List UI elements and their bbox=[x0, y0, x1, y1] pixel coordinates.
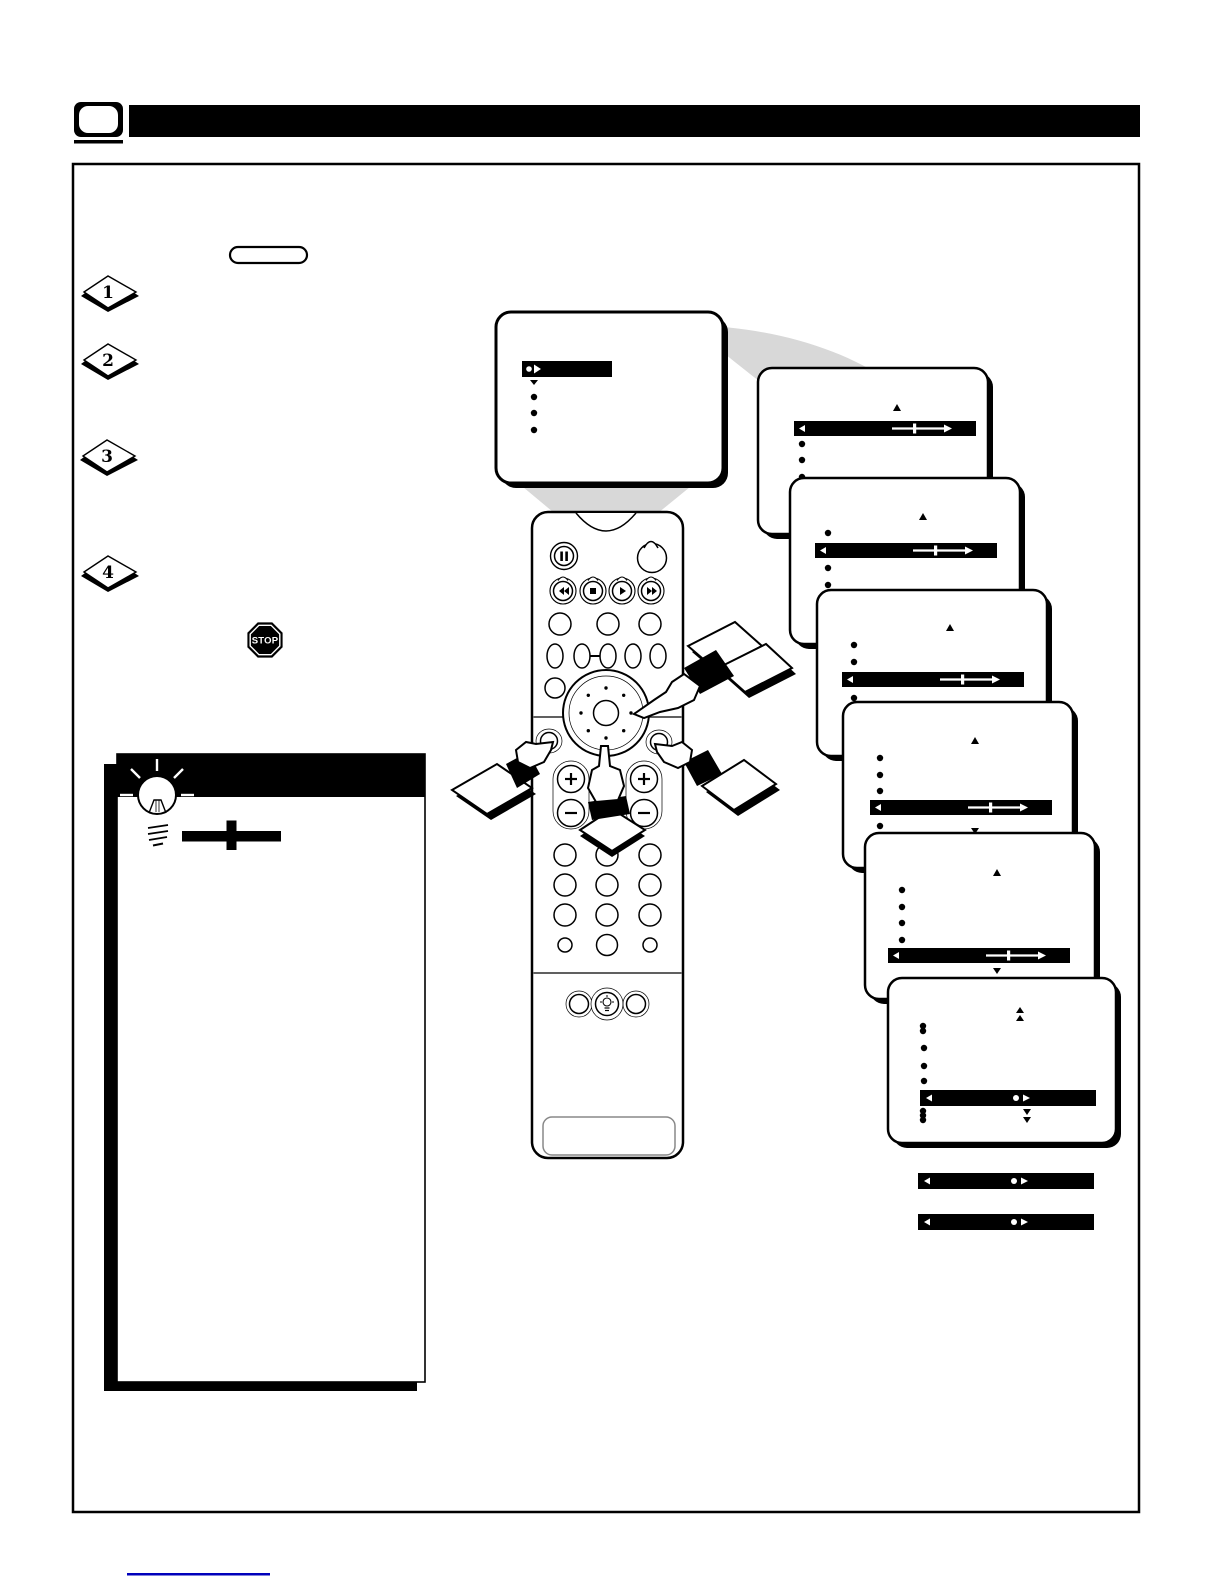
bottom-left-key bbox=[570, 995, 589, 1014]
ok-button bbox=[594, 701, 619, 726]
function-key-2 bbox=[597, 613, 619, 635]
osd-highlight-bar-3 bbox=[842, 672, 1024, 687]
osd-main-menu-screen bbox=[496, 312, 728, 488]
step-3-number: 3 bbox=[101, 447, 113, 467]
rewind-button bbox=[550, 577, 576, 604]
osd-highlight-bar-2 bbox=[815, 543, 997, 558]
bottom-right-key bbox=[627, 995, 646, 1014]
stop-playback-button bbox=[580, 577, 606, 604]
osd-cascade-screen-6 bbox=[888, 978, 1121, 1148]
menu-key bbox=[545, 678, 565, 698]
function-key-3 bbox=[639, 613, 661, 635]
header-title-bar bbox=[129, 105, 1140, 137]
step-1-marker: 1 bbox=[81, 276, 139, 312]
play-button bbox=[609, 577, 635, 604]
osd-option-bar-2 bbox=[918, 1214, 1094, 1230]
stop-label: STOP bbox=[252, 636, 279, 647]
step-markers: 1 2 3 4 bbox=[80, 276, 139, 592]
osd-highlight-bar-5 bbox=[888, 948, 1070, 963]
step-3-marker: 3 bbox=[80, 440, 138, 476]
page-graphics: 1 2 3 4 STOP bbox=[0, 0, 1225, 1585]
osd-highlight-bar-1 bbox=[794, 421, 976, 436]
menu-key-outline bbox=[230, 247, 307, 263]
step-2-marker: 2 bbox=[81, 344, 139, 380]
osd-highlight-bar-6 bbox=[920, 1090, 1096, 1106]
osd-highlight-bar-4 bbox=[870, 800, 1052, 815]
step-1-number: 1 bbox=[102, 283, 114, 303]
stop-icon: STOP bbox=[247, 622, 282, 657]
footer-link-underline[interactable] bbox=[127, 1573, 270, 1576]
fast-forward-button bbox=[638, 577, 664, 604]
step-2-number: 2 bbox=[102, 351, 114, 371]
manual-page: 1 2 3 4 STOP bbox=[0, 0, 1225, 1585]
step-4-number: 4 bbox=[102, 563, 114, 583]
tip-box bbox=[104, 754, 425, 1391]
tv-icon bbox=[74, 102, 123, 144]
pause-button bbox=[551, 543, 578, 570]
osd-option-bar-1 bbox=[918, 1173, 1094, 1189]
function-key-1 bbox=[549, 613, 571, 635]
step-4-marker: 4 bbox=[81, 556, 139, 592]
